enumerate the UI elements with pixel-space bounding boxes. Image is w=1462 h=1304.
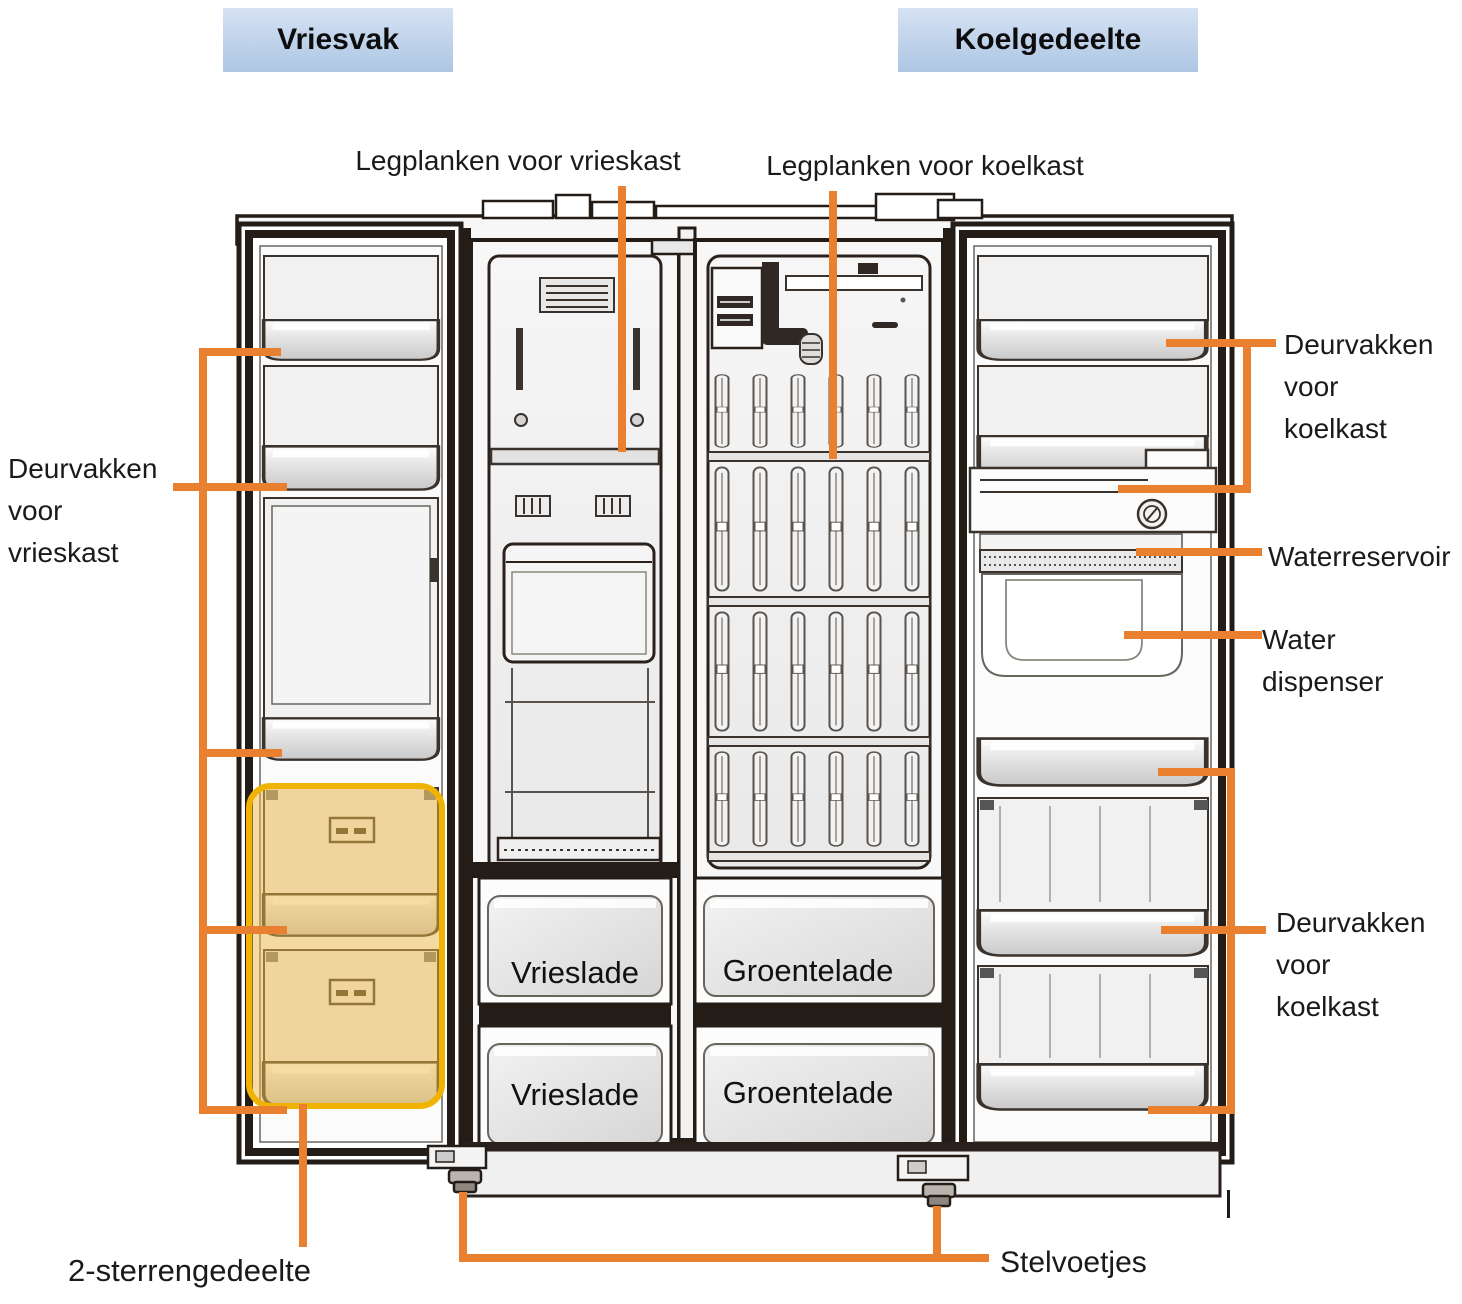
screw-icon	[515, 414, 527, 426]
label-fridge-door-bins-top: Deurvakken voor koelkast	[1284, 324, 1460, 450]
freezer-bottom-tray	[498, 838, 660, 860]
fridge-shelf	[708, 452, 930, 461]
fridge-shelf	[708, 852, 930, 861]
label-freezer-shelves: Legplanken voor vrieskast	[348, 140, 688, 182]
manual-page: { "colors": { "leader_orange": "#E8802F"…	[0, 0, 1462, 1304]
right-leveling-foot	[923, 1184, 955, 1206]
fridge-door-shelf-lip	[979, 739, 1207, 786]
leader-leveling-feet	[463, 1196, 985, 1258]
fridge-header: Koelgedeelte	[898, 8, 1198, 72]
freezer-ice-box	[504, 544, 654, 662]
freezer-vent-grille	[540, 278, 614, 312]
fridge-top-rail	[786, 276, 922, 290]
kickplate	[462, 1150, 1220, 1196]
fridge-shelf	[708, 737, 930, 746]
fridge-control-box	[712, 268, 762, 348]
freezer-door-bin-2	[264, 366, 439, 490]
right-hinge	[898, 1156, 968, 1180]
freezer-header-label: Vriesvak	[277, 23, 399, 57]
two-star-highlight	[249, 786, 442, 1106]
label-water-reservoir: Waterreservoir	[1268, 536, 1462, 578]
freezer-door-bin-3	[264, 498, 439, 760]
fridge-header-label: Koelgedeelte	[955, 23, 1142, 57]
fridge-door-bin-5	[978, 966, 1208, 1110]
fridge-door	[943, 224, 1232, 1162]
stray-mark	[1227, 1190, 1230, 1218]
freezer-header: Vriesvak	[223, 8, 453, 72]
top-hinge-hardware	[483, 194, 982, 220]
left-leveling-foot	[449, 1170, 481, 1192]
fridge-compartment	[695, 240, 943, 1152]
label-freezer-drawer-bottom: Vrieslade	[482, 1078, 668, 1112]
water-dispenser	[982, 574, 1182, 676]
label-crisper-drawer-top: Groentelade	[698, 954, 918, 988]
label-crisper-drawer-bottom: Groentelade	[698, 1076, 918, 1110]
freezer-door-bin-1	[264, 256, 439, 360]
fridge-shelf	[708, 597, 930, 606]
freezer-compartment	[461, 228, 679, 1158]
label-fridge-door-bins-bottom: Deurvakken voor koelkast	[1276, 902, 1460, 1028]
left-hinge	[428, 1146, 486, 1168]
tank-cap-icon	[1138, 500, 1166, 528]
cabinet-base	[428, 1142, 1230, 1218]
freezer-shelf	[491, 449, 659, 464]
label-leveling-feet: Stelvoetjes	[1000, 1242, 1220, 1284]
label-two-star-section: 2-sterrengedeelte	[68, 1250, 388, 1292]
diagram-stage: Vriesvak Koelgedeelte Legplanken voor vr…	[0, 0, 1462, 1304]
label-freezer-drawer-top: Vrieslade	[482, 956, 668, 990]
screw-icon	[631, 414, 643, 426]
label-freezer-door-bins: Deurvakken voor vrieskast	[8, 448, 188, 574]
label-fridge-shelves: Legplanken voor koelkast	[755, 145, 1095, 187]
label-water-dispenser: Water dispenser	[1262, 619, 1462, 703]
